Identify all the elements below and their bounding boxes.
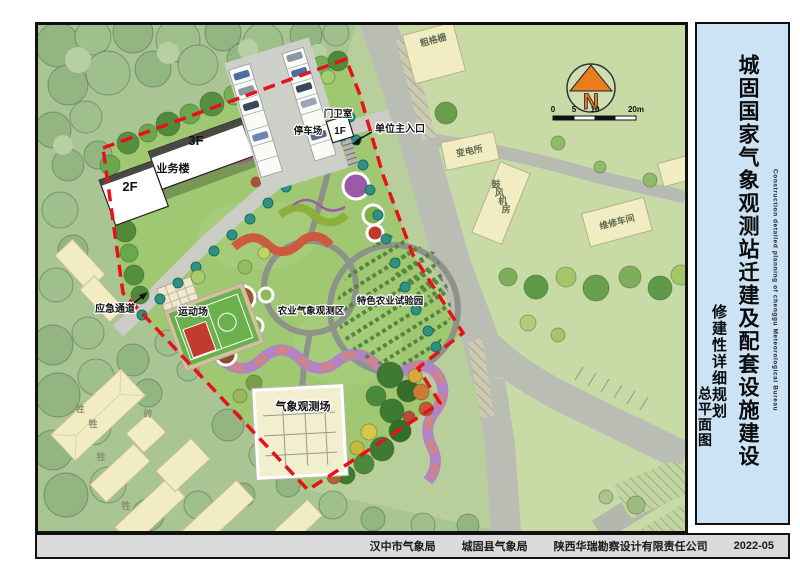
subtitle-english: Construction detailed planning of chengg… xyxy=(771,169,778,411)
drawing-name-title: 总平面图 xyxy=(698,386,712,448)
floor-2f-label: 2F xyxy=(122,179,137,194)
title-block-panel: 城固国家气象观测站迁建及配套设施建设 Construction detailed… xyxy=(695,22,790,525)
agri-trial-garden-label: 特色农业试验园 xyxy=(357,295,424,307)
scale-tick-20m: 20m xyxy=(628,105,644,114)
footer-org-county: 城固县气象局 xyxy=(462,538,528,554)
plan-type-title: 修建性详细规划 xyxy=(711,304,726,420)
scale-tick-5: 5 xyxy=(572,105,577,114)
footer-org-design: 陕西华瑞勘察设计有限责任公司 xyxy=(554,538,708,554)
met-observation-field xyxy=(252,384,349,481)
parking-label: 停车场 xyxy=(294,125,323,137)
floor-1f-label: 1F xyxy=(334,126,346,137)
guard-room-label: 门卫室 xyxy=(324,108,353,120)
footer-org-city: 汉中市气象局 xyxy=(370,538,436,554)
livestock-label: 牲 xyxy=(88,418,97,429)
main-entrance-label: 单位主入口 xyxy=(375,122,425,135)
floor-3f-label: 3F xyxy=(188,133,203,148)
sports-ground-label: 运动场 xyxy=(178,305,208,318)
site-plan-map-frame: 3F 2F 业务楼 1F 停车场 门卫室 单位主入口 应急通道 运动场 农业气象… xyxy=(35,22,688,534)
business-building-label: 业务楼 xyxy=(157,161,190,175)
met-observation-field-label: 气象观测场 xyxy=(275,399,331,413)
livestock-label: 牲 xyxy=(96,451,105,462)
footer-date: 2022-05 xyxy=(734,540,774,552)
brick-label: 砖 xyxy=(143,408,152,419)
drawing-sheet: 3F 2F 业务楼 1F 停车场 门卫室 单位主入口 应急通道 运动场 农业气象… xyxy=(0,0,800,565)
livestock-label: 牲 xyxy=(75,403,84,414)
agri-met-zone-label: 农业气象观测区 xyxy=(277,305,345,317)
footer-bar: 汉中市气象局 城固县气象局 陕西华瑞勘察设计有限责任公司 2022-05 xyxy=(35,533,790,559)
site-plan-map: 3F 2F 业务楼 1F 停车场 门卫室 单位主入口 应急通道 运动场 农业气象… xyxy=(38,25,685,531)
scale-tick-0: 0 xyxy=(551,105,556,114)
scale-tick-10: 10 xyxy=(591,105,600,114)
main-title: 城固国家气象观测站迁建及配套设施建设 xyxy=(737,54,758,468)
emergency-passage-label: 应急通道 xyxy=(95,302,135,315)
livestock-label: 牲 xyxy=(121,500,130,511)
